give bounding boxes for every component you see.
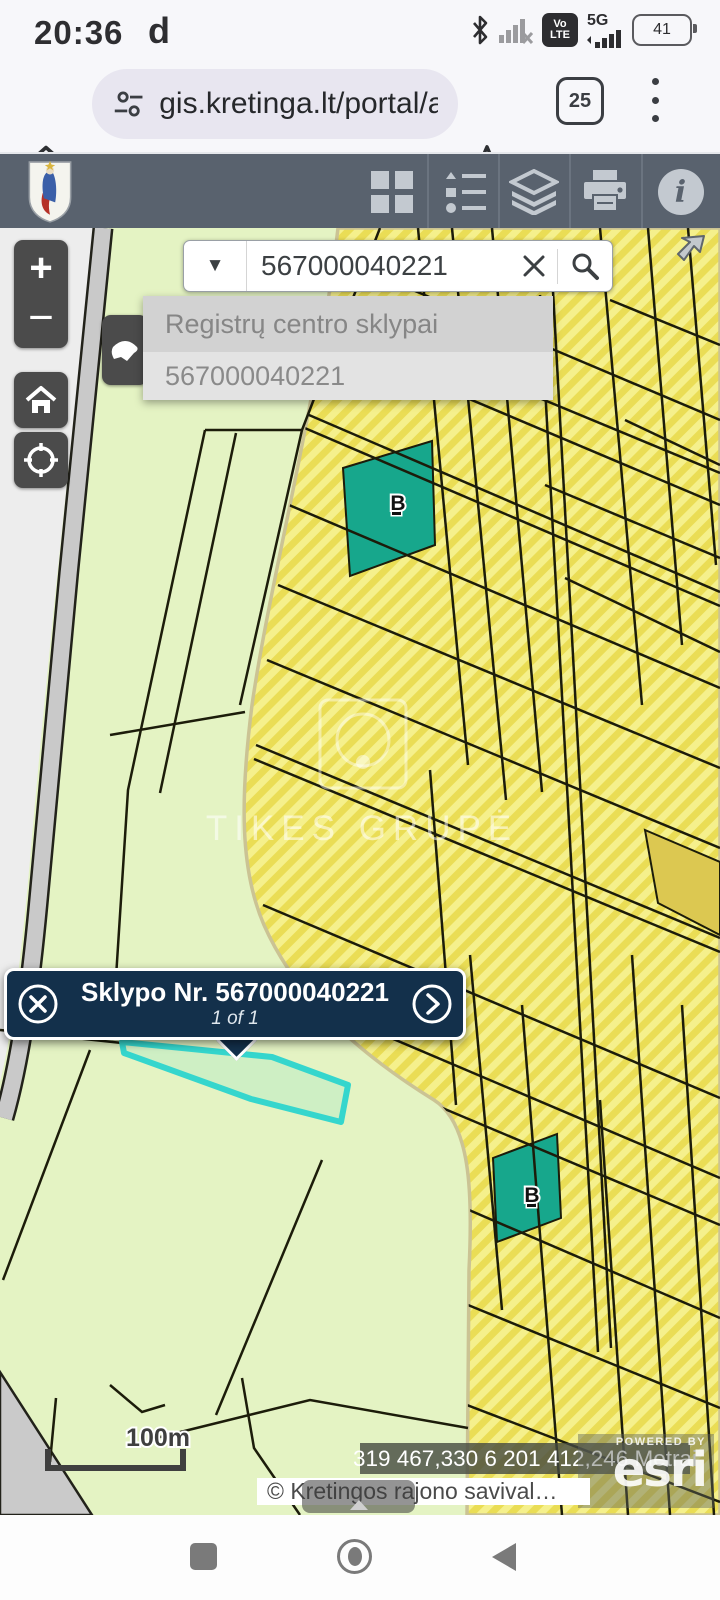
parcel-label-b1: B bbox=[390, 492, 405, 515]
attribution-expand-button[interactable] bbox=[302, 1480, 415, 1513]
search-submit-button[interactable] bbox=[558, 251, 612, 281]
android-navigation-bar bbox=[0, 1515, 720, 1600]
watermark-text: TIKES GRUPĖ bbox=[206, 809, 518, 848]
search-box: ▼ bbox=[183, 240, 613, 292]
select-arrow-icon[interactable] bbox=[670, 230, 712, 272]
tool-button-icon bbox=[108, 333, 142, 367]
info-icon: i bbox=[658, 169, 704, 215]
crosshair-icon bbox=[22, 441, 60, 479]
status-bar: 20:36 d VoLTE 5G bbox=[0, 0, 720, 60]
recents-button[interactable] bbox=[190, 1543, 217, 1570]
layers-icon bbox=[509, 169, 559, 215]
search-source-dropdown-button[interactable]: ▼ bbox=[184, 241, 247, 291]
zoom-control: + − bbox=[14, 240, 68, 348]
site-settings-icon[interactable] bbox=[112, 87, 145, 121]
back-button[interactable] bbox=[492, 1543, 516, 1571]
print-icon bbox=[582, 170, 628, 214]
print-button[interactable] bbox=[569, 154, 641, 230]
apps-grid-button[interactable] bbox=[356, 154, 427, 230]
clock: 20:36 bbox=[34, 14, 123, 52]
zoom-in-button[interactable]: + bbox=[14, 242, 68, 294]
kretinga-coat-of-arms[interactable] bbox=[26, 160, 74, 224]
layers-button[interactable] bbox=[498, 154, 569, 230]
suggestion-item[interactable]: 567000040221 bbox=[143, 352, 553, 400]
signal-sim1-icon bbox=[499, 15, 533, 45]
chevron-up-icon bbox=[350, 1500, 368, 1510]
popup-title: Sklypo Nr. 567000040221 bbox=[69, 978, 401, 1008]
tool-button[interactable] bbox=[102, 315, 148, 385]
search-clear-button[interactable] bbox=[511, 253, 557, 279]
esri-attribution: POWERED BY esri bbox=[578, 1434, 714, 1508]
carrier-logo: d bbox=[148, 10, 170, 52]
legend-button[interactable] bbox=[427, 154, 498, 230]
default-extent-button[interactable] bbox=[14, 372, 68, 428]
gis-app-toolbar: i bbox=[0, 152, 720, 228]
network-type-label: 5G bbox=[587, 13, 608, 29]
bluetooth-icon bbox=[470, 15, 490, 45]
url-bar[interactable]: gis.kretinga.lt/portal/a bbox=[92, 69, 458, 139]
volte-badge: VoLTE bbox=[542, 13, 578, 47]
info-button[interactable]: i bbox=[641, 154, 720, 230]
map-canvas[interactable]: TIKES GRUPĖ B B 100m bbox=[0, 228, 720, 1515]
feature-popup: Sklypo Nr. 567000040221 1 of 1 bbox=[4, 968, 466, 1040]
popup-next-button[interactable] bbox=[411, 983, 453, 1025]
phone-screen: 20:36 d VoLTE 5G bbox=[0, 0, 720, 1600]
battery-icon: 41 bbox=[632, 14, 692, 46]
my-location-button[interactable] bbox=[14, 432, 68, 488]
android-home-button[interactable] bbox=[337, 1539, 372, 1574]
url-text[interactable]: gis.kretinga.lt/portal/a bbox=[159, 87, 438, 121]
scale-label: 100m bbox=[126, 1424, 190, 1452]
signal-sim2-icon bbox=[587, 30, 623, 48]
zoom-out-button[interactable]: − bbox=[14, 292, 68, 344]
browser-menu-button[interactable] bbox=[652, 78, 660, 122]
popup-pager: 1 of 1 bbox=[69, 1008, 401, 1030]
apps-grid-icon bbox=[371, 171, 413, 213]
popup-close-button[interactable] bbox=[17, 983, 59, 1025]
browser-toolbar: gis.kretinga.lt/portal/a 25 bbox=[0, 60, 720, 152]
esri-logo: esri bbox=[613, 1448, 706, 1494]
parcel-label-b2: B bbox=[524, 1184, 539, 1207]
clear-x-icon bbox=[521, 253, 547, 279]
suggestion-group-header: Registrų centro sklypai bbox=[143, 296, 553, 352]
tab-switcher-button[interactable]: 25 bbox=[556, 77, 604, 125]
home-extent-icon bbox=[23, 384, 59, 416]
search-input[interactable] bbox=[247, 250, 511, 282]
legend-list-icon bbox=[440, 171, 486, 213]
search-icon bbox=[570, 251, 600, 281]
search-suggestions: Registrų centro sklypai 567000040221 bbox=[143, 296, 553, 400]
